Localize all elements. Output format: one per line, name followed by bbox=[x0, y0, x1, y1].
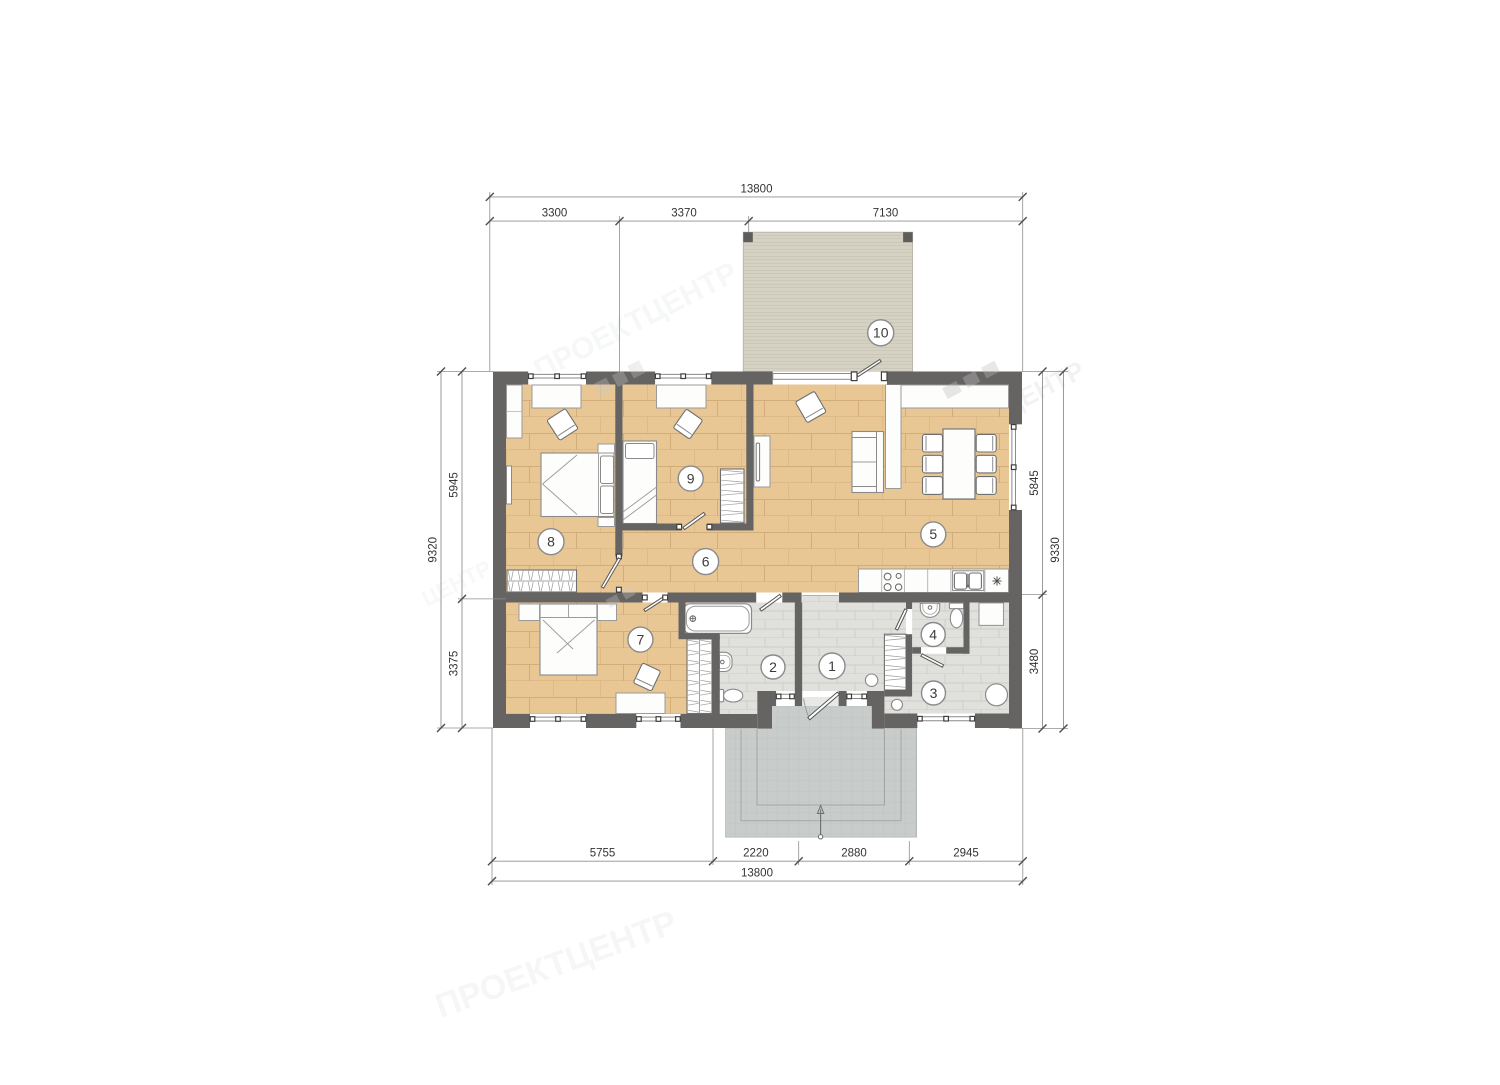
svg-text:2: 2 bbox=[769, 659, 777, 675]
svg-text:3: 3 bbox=[930, 685, 938, 701]
svg-text:3370: 3370 bbox=[671, 208, 697, 220]
svg-text:7: 7 bbox=[637, 631, 645, 647]
svg-text:8: 8 bbox=[547, 534, 555, 550]
svg-text:6: 6 bbox=[702, 553, 710, 569]
svg-text:3375: 3375 bbox=[449, 651, 461, 677]
svg-text:9330: 9330 bbox=[1050, 537, 1062, 563]
svg-text:3480: 3480 bbox=[1029, 649, 1041, 675]
svg-text:7130: 7130 bbox=[873, 208, 899, 220]
svg-text:10: 10 bbox=[873, 325, 889, 341]
svg-text:5845: 5845 bbox=[1029, 470, 1041, 496]
svg-text:4: 4 bbox=[929, 626, 937, 642]
svg-text:1: 1 bbox=[828, 658, 836, 674]
svg-text:9320: 9320 bbox=[428, 537, 440, 563]
svg-text:13800: 13800 bbox=[741, 868, 773, 880]
svg-text:2880: 2880 bbox=[841, 848, 867, 860]
svg-text:3300: 3300 bbox=[542, 208, 568, 220]
svg-text:5: 5 bbox=[929, 526, 937, 542]
svg-text:5945: 5945 bbox=[449, 472, 461, 498]
svg-text:13800: 13800 bbox=[741, 184, 773, 196]
svg-text:2220: 2220 bbox=[743, 848, 769, 860]
svg-text:2945: 2945 bbox=[953, 848, 979, 860]
svg-text:9: 9 bbox=[687, 470, 695, 486]
svg-text:5755: 5755 bbox=[590, 848, 616, 860]
